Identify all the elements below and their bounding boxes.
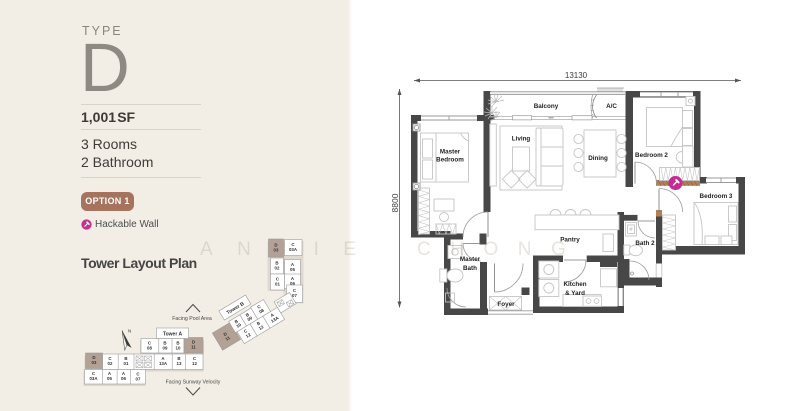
svg-text:& Yard: & Yard xyxy=(565,290,585,297)
svg-text:Bath: Bath xyxy=(463,265,477,272)
svg-text:07: 07 xyxy=(292,293,297,298)
svg-text:Bath 2: Bath 2 xyxy=(635,240,655,247)
svg-text:8800: 8800 xyxy=(390,193,400,212)
svg-text:02: 02 xyxy=(275,266,280,271)
svg-text:Dining: Dining xyxy=(588,155,608,162)
svg-text:Tower A: Tower A xyxy=(163,332,183,338)
svg-text:03: 03 xyxy=(92,360,97,365)
svg-text:A/C: A/C xyxy=(606,103,617,110)
svg-text:Balcony: Balcony xyxy=(534,103,559,110)
svg-text:Facing Pool Area: Facing Pool Area xyxy=(172,316,212,322)
svg-text:10: 10 xyxy=(176,346,181,351)
svg-text:07: 07 xyxy=(136,377,141,382)
svg-text:Master: Master xyxy=(440,149,461,156)
svg-text:02: 02 xyxy=(108,361,113,366)
svg-text:03A: 03A xyxy=(89,376,98,381)
svg-text:12: 12 xyxy=(192,361,197,366)
svg-text:03A: 03A xyxy=(289,247,298,252)
svg-text:Bedroom 3: Bedroom 3 xyxy=(700,193,733,200)
svg-text:N: N xyxy=(128,329,131,334)
svg-text:06: 06 xyxy=(121,376,126,381)
svg-text:08: 08 xyxy=(147,346,152,351)
svg-text:13: 13 xyxy=(177,361,182,366)
svg-text:03: 03 xyxy=(274,248,279,253)
svg-text:13130: 13130 xyxy=(565,71,588,80)
svg-text:CHONG: CHONG xyxy=(417,239,585,260)
svg-text:05: 05 xyxy=(107,376,112,381)
svg-text:Facing Sunway Velocity: Facing Sunway Velocity xyxy=(166,380,221,386)
svg-text:09: 09 xyxy=(163,346,168,351)
svg-text:Foyer: Foyer xyxy=(497,301,515,308)
svg-text:05: 05 xyxy=(290,267,295,272)
svg-text:Living: Living xyxy=(512,136,531,143)
svg-text:11: 11 xyxy=(191,345,196,350)
svg-text:13A: 13A xyxy=(159,361,168,366)
svg-text:06: 06 xyxy=(290,281,295,286)
svg-text:Kitchen: Kitchen xyxy=(563,281,586,288)
svg-text:01: 01 xyxy=(124,361,129,366)
svg-text:01: 01 xyxy=(275,282,280,287)
svg-text:Bedroom: Bedroom xyxy=(436,157,464,164)
svg-text:Bedroom 2: Bedroom 2 xyxy=(635,152,668,159)
